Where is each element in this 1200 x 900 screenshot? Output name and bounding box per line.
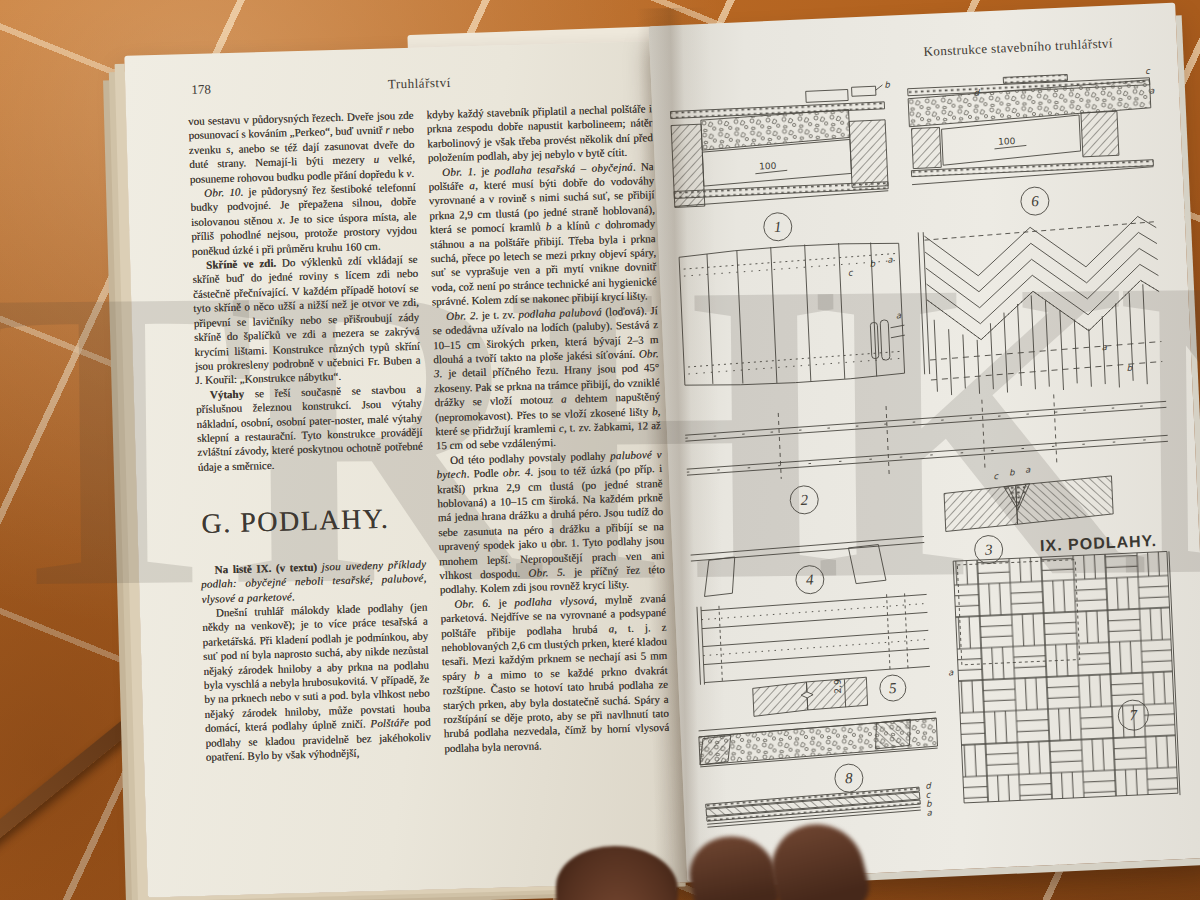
part-label: c xyxy=(993,471,999,481)
figure-number-4: 4 xyxy=(806,572,815,588)
part-label: b xyxy=(884,80,890,90)
left-page-column-2: kdyby každý stavebník připlatil a nechal… xyxy=(426,101,670,758)
dimension-100: 100 xyxy=(759,161,777,172)
diagram-plate: b 100 1 c a d 100 xyxy=(667,63,1198,900)
figure-number-6: 6 xyxy=(1031,193,1040,209)
part-label: b xyxy=(1009,467,1015,477)
part-label: a xyxy=(1025,465,1031,475)
paragraph: vou sestavu v půdorysných řezech. Dveře … xyxy=(188,108,415,186)
figure-8-strip: 8 d c b a xyxy=(704,760,934,827)
section-heading: G. PODLAHY. xyxy=(201,500,421,543)
herringbone-parquet-plan: a b xyxy=(918,216,1163,397)
joist-rails xyxy=(684,389,1169,485)
part-label: a xyxy=(948,667,954,677)
part-label: a xyxy=(926,807,932,817)
dimension-100: 100 xyxy=(998,136,1016,147)
figure-number-2: 2 xyxy=(800,492,809,508)
left-page-column-1: vou sestavu v půdorysných řezech. Dveře … xyxy=(188,108,432,765)
figure-7-parquet: a 7 xyxy=(943,551,1180,805)
photo-scene: 178 Truhlářství vou sestavu v půdorysnýc… xyxy=(0,0,1200,900)
figure-5-plan xyxy=(697,592,930,684)
right-page: Konstrukce stavebního truhlářství xyxy=(649,3,1200,882)
paragraph: Skříně ve zdi. Do výklenků zdí vkládají … xyxy=(192,252,421,388)
paragraph: Obr. 2. je t. zv. podlaha palubová (loďo… xyxy=(432,303,661,453)
figure-number-8: 8 xyxy=(845,770,854,786)
paragraph: Od této podlahy povstaly podlahy palubov… xyxy=(436,447,665,597)
left-page-header: 178 Truhlářství xyxy=(187,69,651,104)
part-label: a xyxy=(896,310,902,320)
paragraph: Obr. 10. je půdorysný řez šestiboké tele… xyxy=(190,180,417,258)
figure-number-3: 3 xyxy=(984,541,993,557)
figure-number-5: 5 xyxy=(889,680,898,696)
paragraph: Na listě IX. (v textu) jsou uvedeny přík… xyxy=(201,556,428,605)
part-label: c xyxy=(1145,66,1151,76)
part-label: a xyxy=(887,255,893,265)
figure-6-section: c a d 100 6 xyxy=(907,66,1160,221)
paragraph: Obr. 6. je podlaha vlysová, mylně zvaná … xyxy=(440,591,670,756)
left-page: 178 Truhlářství vou sestavu v půdorysnýc… xyxy=(124,40,699,897)
part-label: a xyxy=(1101,342,1107,352)
figure-1-section: b 100 1 xyxy=(669,80,897,246)
figure-number-1: 1 xyxy=(774,219,782,235)
figure-4-rail: 4 xyxy=(690,536,926,599)
rubble-band-section xyxy=(698,712,938,767)
running-header-left: Truhlářství xyxy=(187,69,651,98)
paragraph: kdyby každý stavebník připlatil a nechal… xyxy=(426,101,653,165)
plate-label: IX. PODLAHY. xyxy=(1040,532,1158,554)
paragraph: Dnešní truhlář málokdy klade podlahy (je… xyxy=(202,600,432,765)
paragraph: Výtahy se řeší současně se stavbou a pří… xyxy=(196,381,424,474)
figure-2-plan: c b a a xyxy=(679,240,907,388)
paragraph: Obr. 1. je podlaha tesařská – obyčejná. … xyxy=(428,159,657,309)
figure-5-section: 2,9 5 xyxy=(752,674,906,716)
dimension-2-9: 2,9 xyxy=(832,679,843,694)
part-label: c xyxy=(848,267,854,277)
part-label: b xyxy=(869,258,875,268)
part-label: b xyxy=(1126,363,1132,373)
